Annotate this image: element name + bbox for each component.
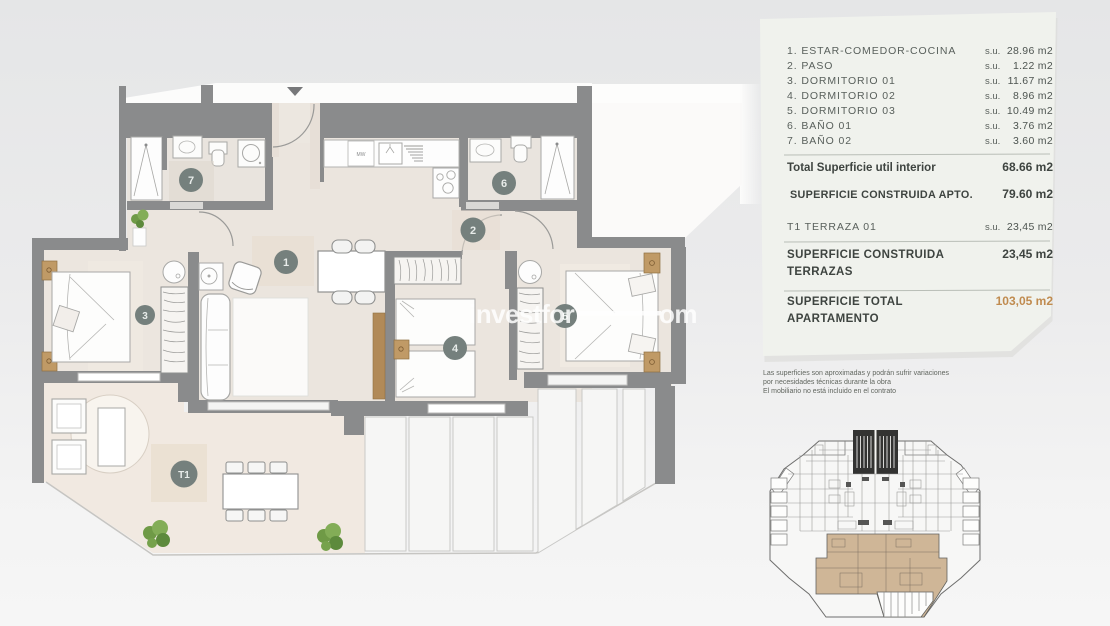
svg-text:APARTAMENTO: APARTAMENTO [787, 313, 879, 325]
svg-text:1: 1 [283, 257, 289, 269]
svg-text:10.49 m2: 10.49 m2 [1007, 105, 1053, 117]
svg-text:2. PASO: 2. PASO [787, 60, 833, 72]
svg-text:1.22 m2: 1.22 m2 [1013, 60, 1053, 72]
svg-text:SUPERFICIE CONSTRUIDA APTO.: SUPERFICIE CONSTRUIDA APTO. [790, 189, 973, 201]
svg-text:8.96 m2: 8.96 m2 [1013, 90, 1053, 102]
svg-text:3.76 m2: 3.76 m2 [1013, 120, 1053, 132]
svg-text:28.96 m2: 28.96 m2 [1007, 45, 1053, 57]
svg-text:MW: MW [357, 152, 366, 158]
svg-text:T1 TERRAZA 01: T1 TERRAZA 01 [787, 221, 877, 233]
svg-text:TERRAZAS: TERRAZAS [787, 266, 853, 278]
svg-text:23,45 m2: 23,45 m2 [1002, 247, 1053, 261]
svg-text:por necesidades técnicas duran: por necesidades técnicas durante la obra [763, 379, 891, 386]
svg-text:23,45 m2: 23,45 m2 [1007, 221, 1053, 233]
svg-text:68.66 m2: 68.66 m2 [1002, 160, 1053, 174]
svg-text:SUPERFICIE CONSTRUIDA: SUPERFICIE CONSTRUIDA [787, 249, 944, 261]
svg-text:T1: T1 [178, 470, 190, 481]
svg-text:SUPERFICIE TOTAL: SUPERFICIE TOTAL [787, 296, 903, 308]
svg-text:6: 6 [501, 178, 507, 190]
svg-text:1. ESTAR-COMEDOR-COCINA: 1. ESTAR-COMEDOR-COCINA [787, 45, 956, 57]
svg-text:Las superficies son aproximada: Las superficies son aproximadas y podrán… [763, 370, 949, 377]
svg-text:103,05 m2: 103,05 m2 [996, 294, 1054, 308]
svg-text:7. BAÑO 02: 7. BAÑO 02 [787, 134, 852, 147]
svg-text:3: 3 [142, 311, 148, 322]
svg-text:7: 7 [188, 175, 194, 187]
svg-text:om: om [659, 299, 697, 329]
svg-text:s.u.: s.u. [985, 91, 1000, 102]
svg-text:s.u.: s.u. [985, 106, 1000, 117]
svg-text:2: 2 [470, 225, 476, 237]
svg-text:s.u.: s.u. [985, 121, 1000, 132]
svg-text:s.u.: s.u. [985, 136, 1000, 147]
svg-text:6. BAÑO 01: 6. BAÑO 01 [787, 119, 852, 132]
svg-text:Total Superficie util interior: Total Superficie util interior [787, 162, 936, 174]
svg-text:El mobiliario no está incluido: El mobiliario no está incluido en el con… [763, 388, 896, 395]
svg-text:4. DORMITORIO 02: 4. DORMITORIO 02 [787, 90, 896, 102]
svg-text:investfor: investfor [469, 299, 575, 329]
svg-text:3.60 m2: 3.60 m2 [1013, 135, 1053, 147]
svg-text:s.u.: s.u. [985, 61, 1000, 72]
svg-text:11.67 m2: 11.67 m2 [1008, 75, 1053, 87]
svg-text:s.u.: s.u. [985, 222, 1000, 233]
svg-text:s.u.: s.u. [985, 76, 1000, 87]
svg-text:4: 4 [452, 343, 459, 355]
svg-text:s.u.: s.u. [985, 46, 1000, 57]
svg-text:5. DORMITORIO 03: 5. DORMITORIO 03 [787, 105, 896, 117]
svg-text:3. DORMITORIO 01: 3. DORMITORIO 01 [787, 75, 896, 87]
svg-text:79.60 m2: 79.60 m2 [1002, 187, 1053, 201]
